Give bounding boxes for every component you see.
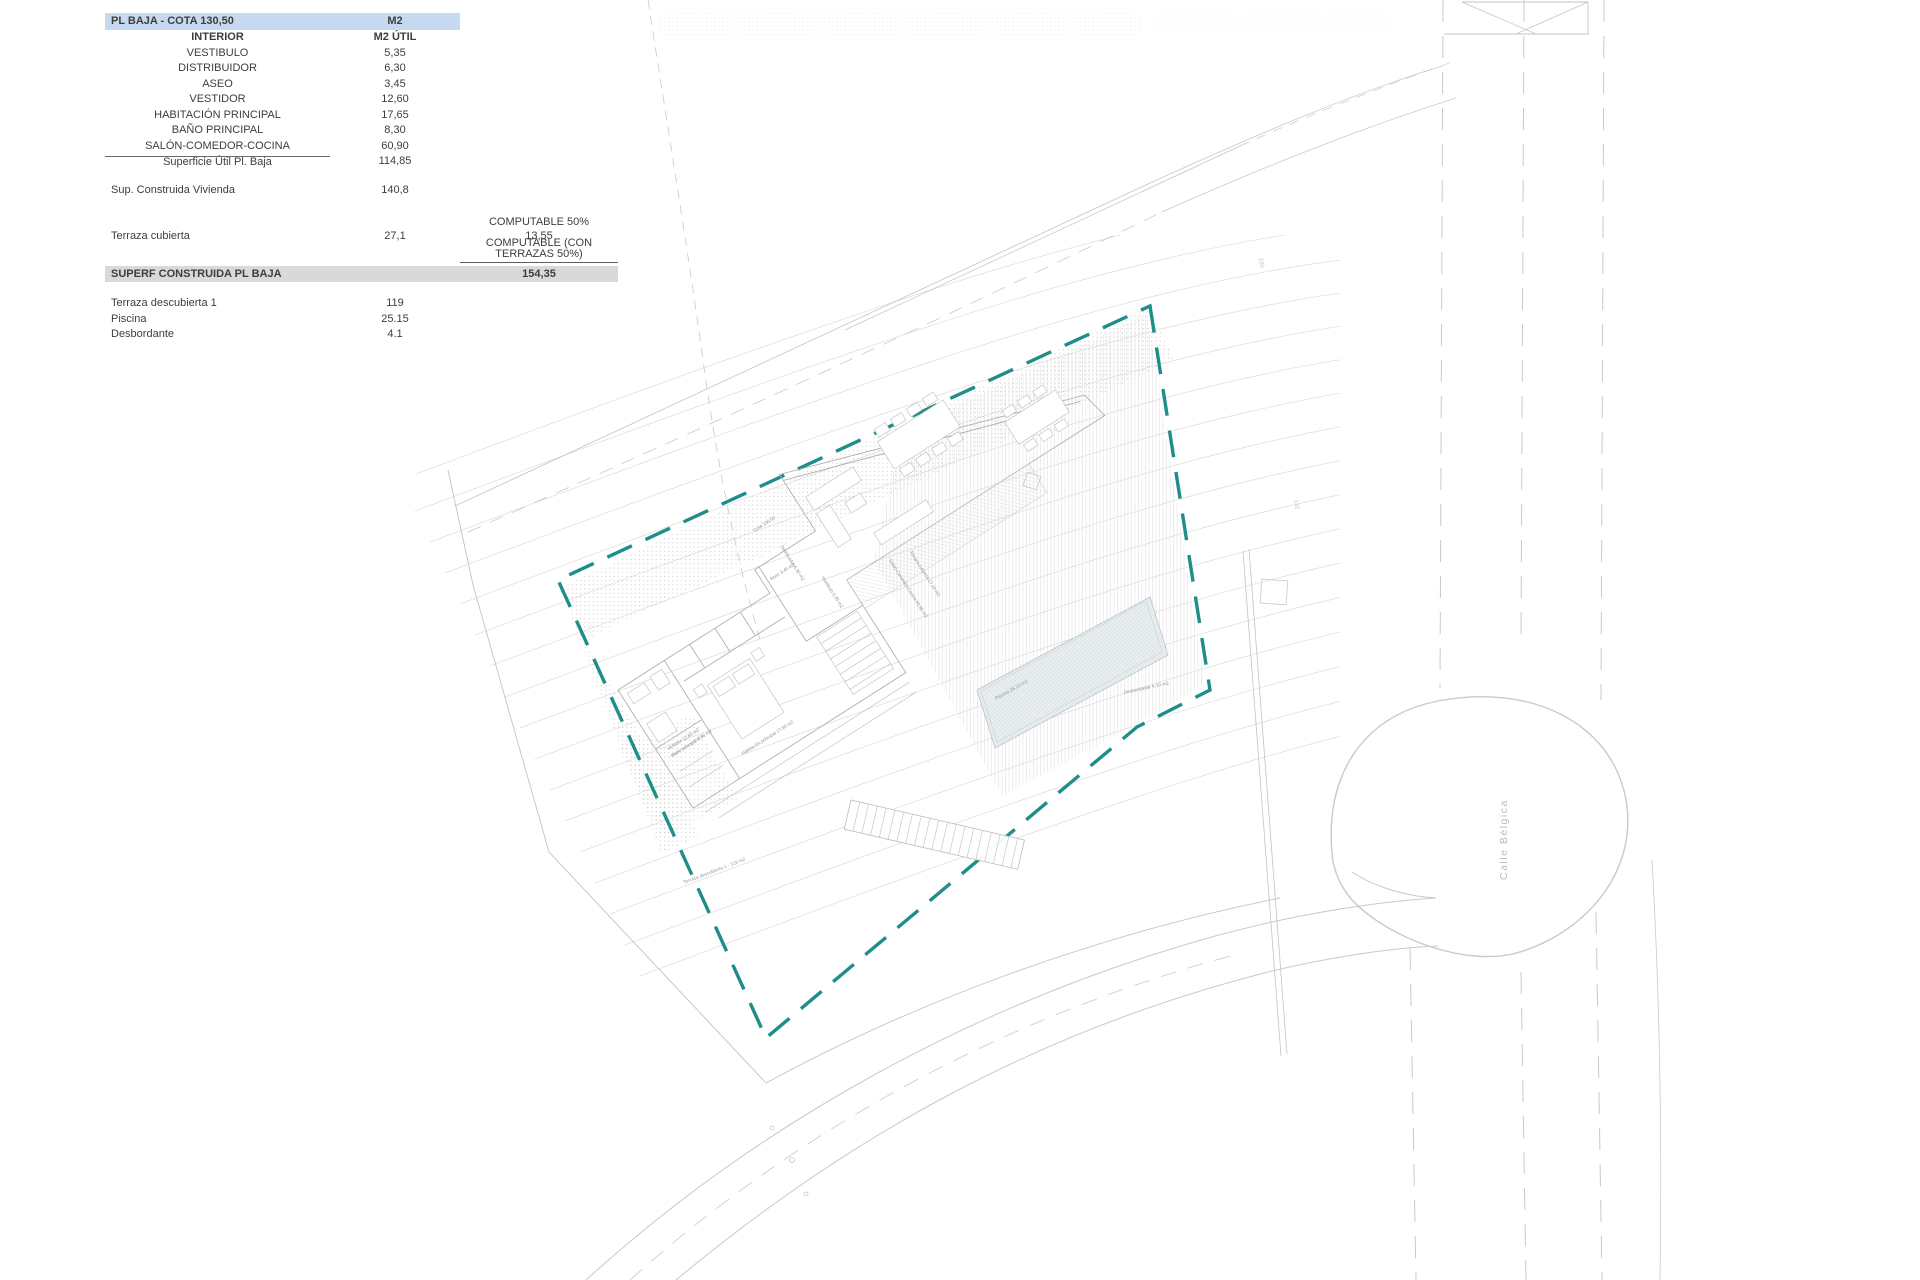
contour-label-2: 132 <box>1292 499 1300 511</box>
drawing-sheet: Calle Bélgica <box>0 0 1920 1280</box>
room-label: HABITACIÓN PRINCIPAL <box>105 110 330 121</box>
computable-note: COMPUTABLE (CON TERRAZAS 50%) <box>460 238 618 263</box>
subheader-unit: M2 ÚTIL <box>330 32 460 43</box>
spacer <box>105 282 618 296</box>
construida-label: Sup. Construida Vivienda <box>105 185 330 196</box>
extra-value: 25.15 <box>330 314 460 325</box>
area-summary-table: PL BAJA - COTA 130,50M2INTERIORM2 ÚTILVE… <box>105 13 618 343</box>
header-unit: M2 <box>330 16 460 27</box>
room-row: DISTRIBUIDOR6,30 <box>105 61 618 77</box>
extra-label: Piscina <box>105 314 330 325</box>
terraza-label: Terraza cubierta <box>105 231 330 242</box>
room-value: 5,35 <box>330 48 460 59</box>
room-value: 17,65 <box>330 110 460 121</box>
room-label: DISTRIBUIDOR <box>105 63 330 74</box>
street-name-label: Calle Bélgica <box>1498 799 1510 880</box>
room-row: BAÑO PRINCIPAL8,30 <box>105 123 618 139</box>
header-label: PL BAJA - COTA 130,50 <box>105 16 330 27</box>
label-terraza-descubierta: Terraza descubierta 1 - 119 m2 <box>683 856 747 885</box>
subtotal-value: 114,85 <box>330 156 460 167</box>
extra-label: Terraza descubierta 1 <box>105 298 330 309</box>
room-row: SALÓN-COMEDOR-COCINA60,90 <box>105 139 618 155</box>
subtotal-row: Superficie Útil Pl. Baja114,85 <box>105 154 618 170</box>
terraza-value: 27,1 <box>330 231 460 242</box>
room-row: VESTIDOR12,60 <box>105 92 618 108</box>
extra-row: Terraza descubierta 1119 <box>105 296 618 312</box>
table-header-band: PL BAJA - COTA 130,50M2 <box>105 13 460 30</box>
extra-value: 119 <box>330 298 460 309</box>
banner-value: 154,35 <box>460 269 618 280</box>
room-row: VESTIBULO5,35 <box>105 46 618 62</box>
computable-note-row: COMPUTABLE (CON TERRAZAS 50%) <box>105 243 618 257</box>
room-value: 3,45 <box>330 79 460 90</box>
table-header-row: PL BAJA - COTA 130,50M2 <box>105 13 618 30</box>
neighbor-building-footprint <box>1444 2 1588 34</box>
computable-title: COMPUTABLE 50% <box>460 217 618 228</box>
table-subheader-row: INTERIORM2 ÚTIL <box>105 30 618 46</box>
exterior-stairs <box>844 800 1024 869</box>
room-label: VESTIDOR <box>105 94 330 105</box>
banner-label: SUPERF CONSTRUIDA PL BAJA <box>105 269 330 280</box>
extra-label: Desbordante <box>105 329 330 340</box>
room-label: SALÓN-COMEDOR-COCINA <box>105 141 330 152</box>
label-vestibulo: Vestíbulo 5,35 m2 <box>820 575 844 609</box>
extra-value: 4.1 <box>330 329 460 340</box>
extra-row: Piscina25.15 <box>105 312 618 328</box>
room-row: HABITACIÓN PRINCIPAL17,65 <box>105 108 618 124</box>
spacer <box>105 170 618 183</box>
culdesac-loop <box>1331 697 1628 957</box>
street-calle-belgica: Calle Bélgica <box>1331 0 1661 1280</box>
construida-row: Sup. Construida Vivienda140,8 <box>105 183 618 199</box>
subtotal-label: Superficie Útil Pl. Baja <box>105 156 330 168</box>
construida-value: 140,8 <box>330 185 460 196</box>
banner-row: SUPERF CONSTRUIDA PL BAJA154,35 <box>105 266 618 282</box>
room-value: 12,60 <box>330 94 460 105</box>
label-distribuidor: Distribuidor 6,30 m2 <box>779 544 806 582</box>
room-value: 60,90 <box>330 141 460 152</box>
room-value: 6,30 <box>330 63 460 74</box>
room-row: ASEO3,45 <box>105 77 618 93</box>
contour-label-1: 130 <box>1257 258 1264 269</box>
lower-road <box>586 872 1438 1280</box>
room-label: ASEO <box>105 79 330 90</box>
room-label: VESTIBULO <box>105 48 330 59</box>
spacer <box>105 198 618 215</box>
computable-title-row: COMPUTABLE 50% <box>105 215 618 229</box>
extra-row: Desbordante4.1 <box>105 327 618 343</box>
room-value: 8,30 <box>330 125 460 136</box>
room-label: BAÑO PRINCIPAL <box>105 125 330 136</box>
subheader-label: INTERIOR <box>105 32 330 43</box>
